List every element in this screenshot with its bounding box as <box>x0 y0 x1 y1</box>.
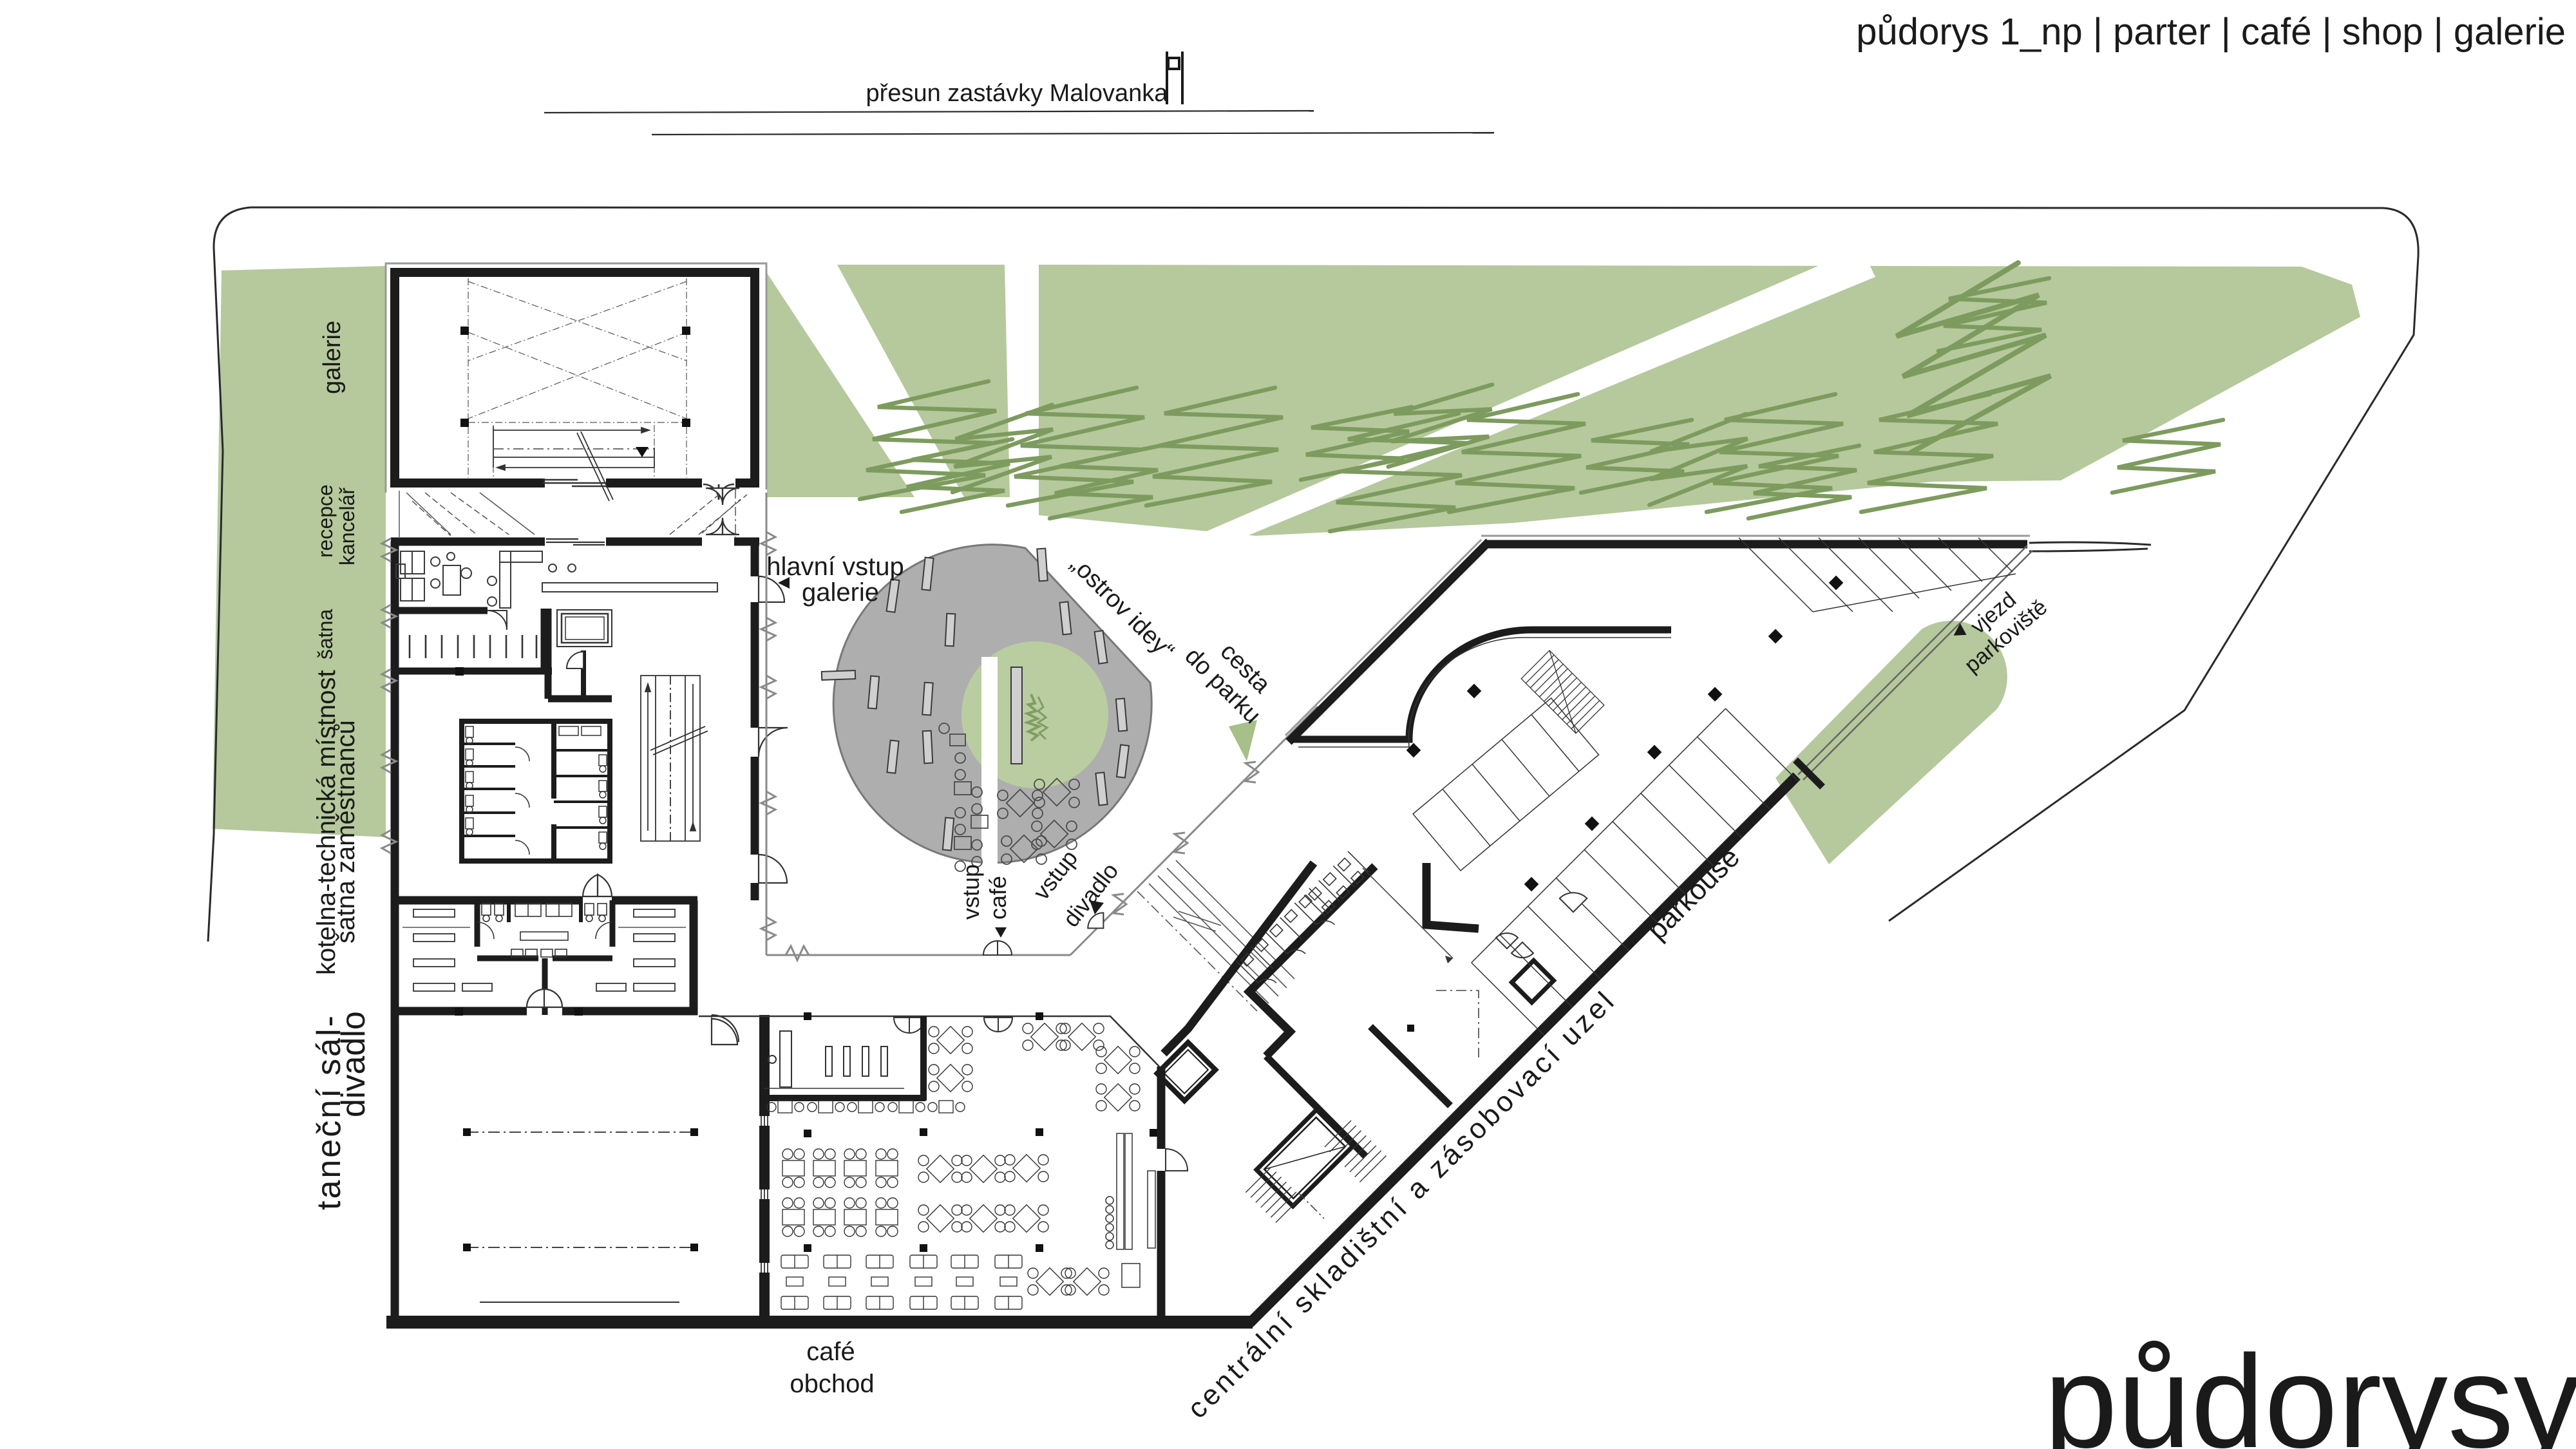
svg-text:kancelář: kancelář <box>336 487 359 565</box>
svg-text:půdorys 1_np | parter | café: půdorys 1_np | parter | café | shop | ga… <box>1856 11 2566 53</box>
svg-text:šatna zaměstnanců: šatna zaměstnanců <box>332 720 360 943</box>
svg-text:hlavní vstup: hlavní vstup <box>766 553 904 581</box>
svg-text:café: café <box>806 1338 855 1366</box>
svg-text:café: café <box>985 876 1011 920</box>
svg-text:obchod: obchod <box>790 1370 874 1398</box>
svg-text:vstup: vstup <box>958 864 984 920</box>
svg-text:přesun zastávky Malovanka: přesun zastávky Malovanka <box>866 80 1169 107</box>
svg-text:recepce: recepce <box>314 484 337 558</box>
svg-text:galerie: galerie <box>319 321 346 394</box>
svg-text:divadlo: divadlo <box>335 1011 372 1117</box>
svg-text:šatna: šatna <box>314 609 337 659</box>
svg-text:galerie: galerie <box>802 578 879 607</box>
svg-text:půdorysy: půdorysy <box>2044 1328 2576 1449</box>
